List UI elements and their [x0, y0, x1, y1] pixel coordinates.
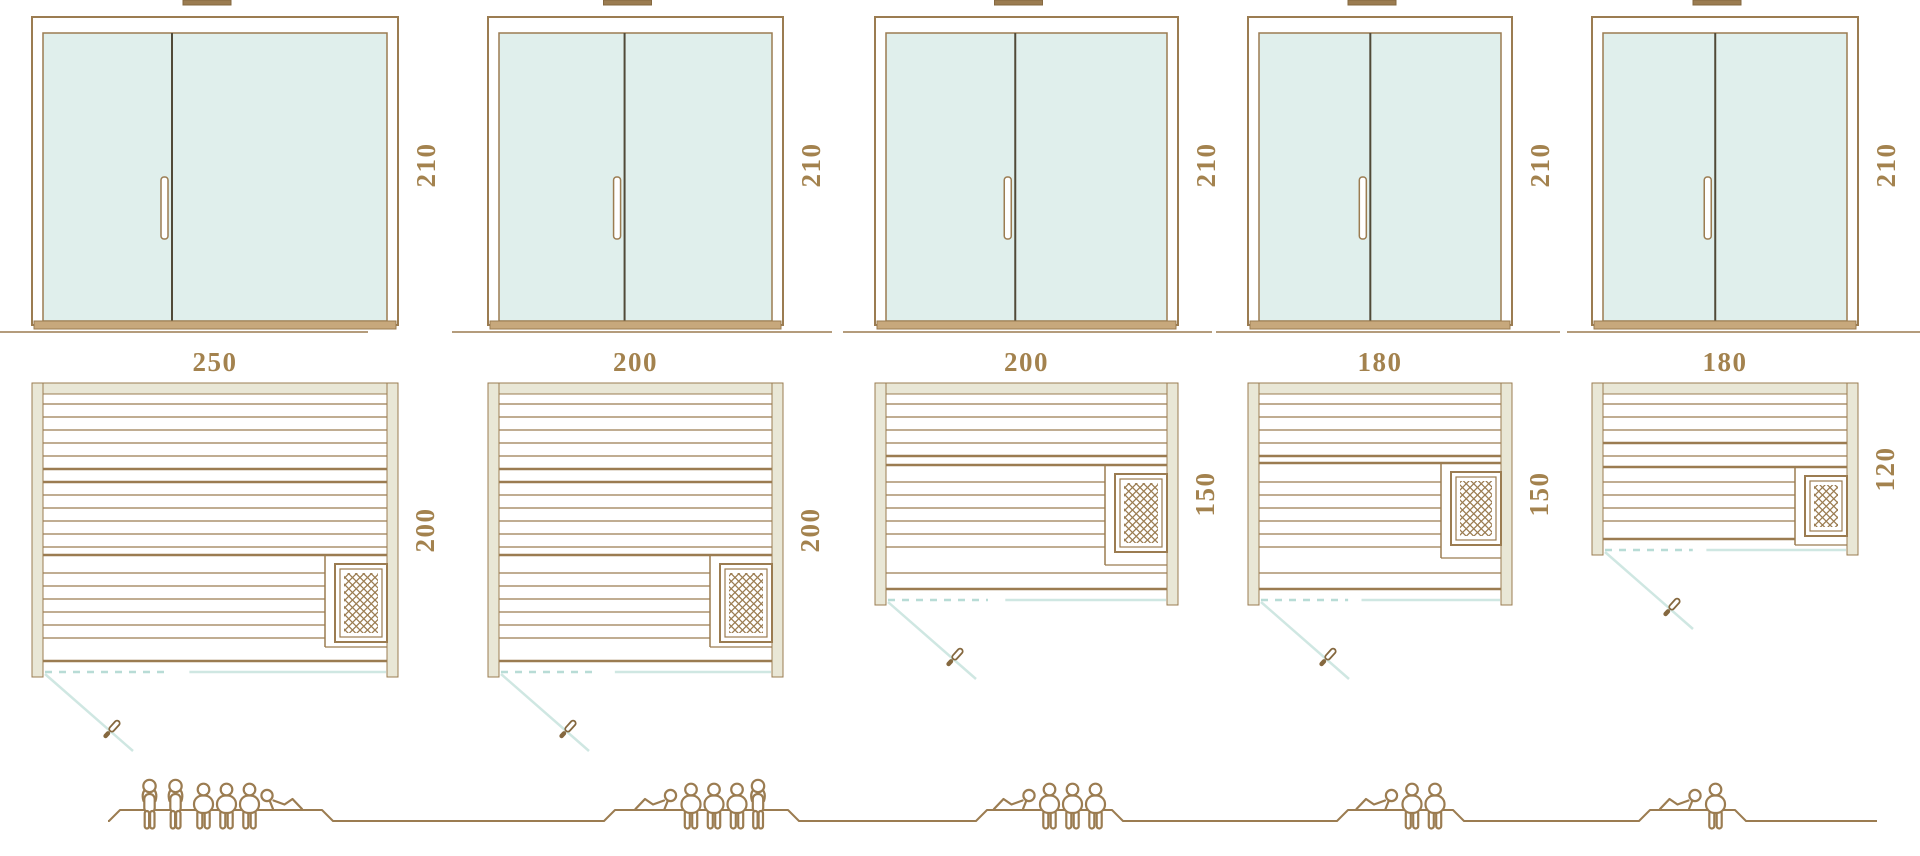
- door-glass: [1259, 33, 1501, 321]
- floor-plan: 200200: [488, 347, 825, 751]
- person-sitting-icon: [240, 784, 259, 829]
- depth-dimension-label: 120: [1870, 447, 1900, 492]
- wall-right: [772, 383, 783, 677]
- base-sill: [1594, 321, 1856, 329]
- person-sitting-icon: [1086, 784, 1105, 829]
- wall-left: [32, 383, 43, 677]
- roof-cap: [1693, 0, 1741, 5]
- unit-sauna-200x200: 210200200: [452, 0, 832, 751]
- heater-grid: [344, 573, 378, 633]
- door-elevation: 210: [843, 0, 1221, 332]
- person-lying-icon: [994, 790, 1035, 809]
- person-lying-icon: [1660, 790, 1701, 809]
- person-sitting-icon: [1040, 784, 1059, 829]
- roof-cap: [604, 0, 652, 5]
- door-handle: [1004, 177, 1011, 239]
- door-handle: [614, 177, 621, 239]
- depth-dimension-label: 150: [1524, 472, 1554, 517]
- door-handle: [1359, 177, 1366, 239]
- capacity-figures-sauna-180x120: [1660, 784, 1725, 829]
- door-elevation: 210: [452, 0, 832, 332]
- unit-sauna-250x200: 210250200: [0, 0, 441, 751]
- door-glass: [1603, 33, 1847, 321]
- door-handle: [1704, 177, 1711, 239]
- height-dimension-label: 210: [1525, 143, 1555, 188]
- person-lying-icon: [636, 790, 677, 809]
- depth-dimension-label: 200: [410, 508, 440, 553]
- wall-top: [488, 383, 783, 394]
- sauna-size-comparison-diagram: 2102502002102002002102001502101801502101…: [0, 0, 1920, 856]
- wall-left: [875, 383, 886, 605]
- floor-plan: 180120: [1592, 347, 1900, 629]
- heater-grid: [1460, 481, 1492, 536]
- unit-sauna-180x120: 210180120: [1567, 0, 1920, 629]
- person-standing-icon: [751, 780, 765, 829]
- capacity-figures-sauna-250x200: [143, 780, 302, 829]
- person-lying-icon: [261, 790, 302, 809]
- width-dimension-label: 180: [1358, 347, 1403, 377]
- person-sitting-icon: [705, 784, 724, 829]
- capacity-figures-sauna-200x150: [994, 784, 1105, 829]
- door-swing-line: [45, 674, 133, 751]
- unit-sauna-180x150: 210180150: [1216, 0, 1560, 679]
- width-dimension-label: 200: [1004, 347, 1049, 377]
- person-sitting-icon: [1063, 784, 1082, 829]
- door-handle: [161, 177, 168, 239]
- roof-cap: [995, 0, 1043, 5]
- height-dimension-label: 210: [796, 143, 826, 188]
- width-dimension-label: 250: [193, 347, 238, 377]
- width-dimension-label: 180: [1703, 347, 1748, 377]
- wall-right: [1847, 383, 1858, 555]
- door-glass: [886, 33, 1167, 321]
- wall-left: [1592, 383, 1603, 555]
- person-sitting-icon: [194, 784, 213, 829]
- heater-grid: [1814, 485, 1838, 527]
- capacity-figures-sauna-200x200: [636, 780, 765, 829]
- wall-top: [1248, 383, 1512, 394]
- door-swing-line: [888, 602, 976, 679]
- floor-plan: 200150: [875, 347, 1220, 679]
- person-standing-icon: [169, 780, 183, 829]
- base-sill: [490, 321, 781, 329]
- person-lying-icon: [1357, 790, 1398, 809]
- capacity-figures-sauna-180x150: [1357, 784, 1445, 829]
- door-elevation: 210: [1216, 0, 1560, 332]
- wall-right: [387, 383, 398, 677]
- door-glass: [43, 33, 387, 321]
- door-swing-line: [1261, 602, 1349, 679]
- floor-plan: 250200: [32, 347, 440, 751]
- person-sitting-icon: [1706, 784, 1725, 829]
- ground-profile-line: [108, 810, 1877, 821]
- diagram-canvas: 2102502002102002002102001502101801502101…: [0, 0, 1920, 856]
- wall-left: [1248, 383, 1259, 605]
- person-sitting-icon: [1403, 784, 1422, 829]
- person-sitting-icon: [728, 784, 747, 829]
- person-standing-icon: [143, 780, 157, 829]
- wall-top: [32, 383, 398, 394]
- height-dimension-label: 210: [1871, 143, 1901, 188]
- heater-grid: [729, 573, 763, 633]
- door-swing-line: [1605, 552, 1693, 629]
- base-sill: [877, 321, 1176, 329]
- floor-plan: 180150: [1248, 347, 1554, 679]
- door-glass: [499, 33, 772, 321]
- height-dimension-label: 210: [411, 143, 441, 188]
- wall-top: [1592, 383, 1858, 394]
- width-dimension-label: 200: [613, 347, 658, 377]
- wall-top: [875, 383, 1178, 394]
- person-sitting-icon: [217, 784, 236, 829]
- depth-dimension-label: 200: [795, 508, 825, 553]
- base-sill: [1250, 321, 1510, 329]
- unit-sauna-200x150: 210200150: [843, 0, 1221, 679]
- roof-cap: [1348, 0, 1396, 5]
- roof-cap: [183, 0, 231, 5]
- wall-right: [1167, 383, 1178, 605]
- wall-right: [1501, 383, 1512, 605]
- door-elevation: 210: [0, 0, 441, 332]
- wall-left: [488, 383, 499, 677]
- door-elevation: 210: [1567, 0, 1920, 332]
- door-swing-line: [501, 674, 589, 751]
- person-sitting-icon: [682, 784, 701, 829]
- base-sill: [34, 321, 396, 329]
- person-sitting-icon: [1426, 784, 1445, 829]
- height-dimension-label: 210: [1191, 143, 1221, 188]
- heater-grid: [1124, 483, 1158, 543]
- depth-dimension-label: 150: [1190, 472, 1220, 517]
